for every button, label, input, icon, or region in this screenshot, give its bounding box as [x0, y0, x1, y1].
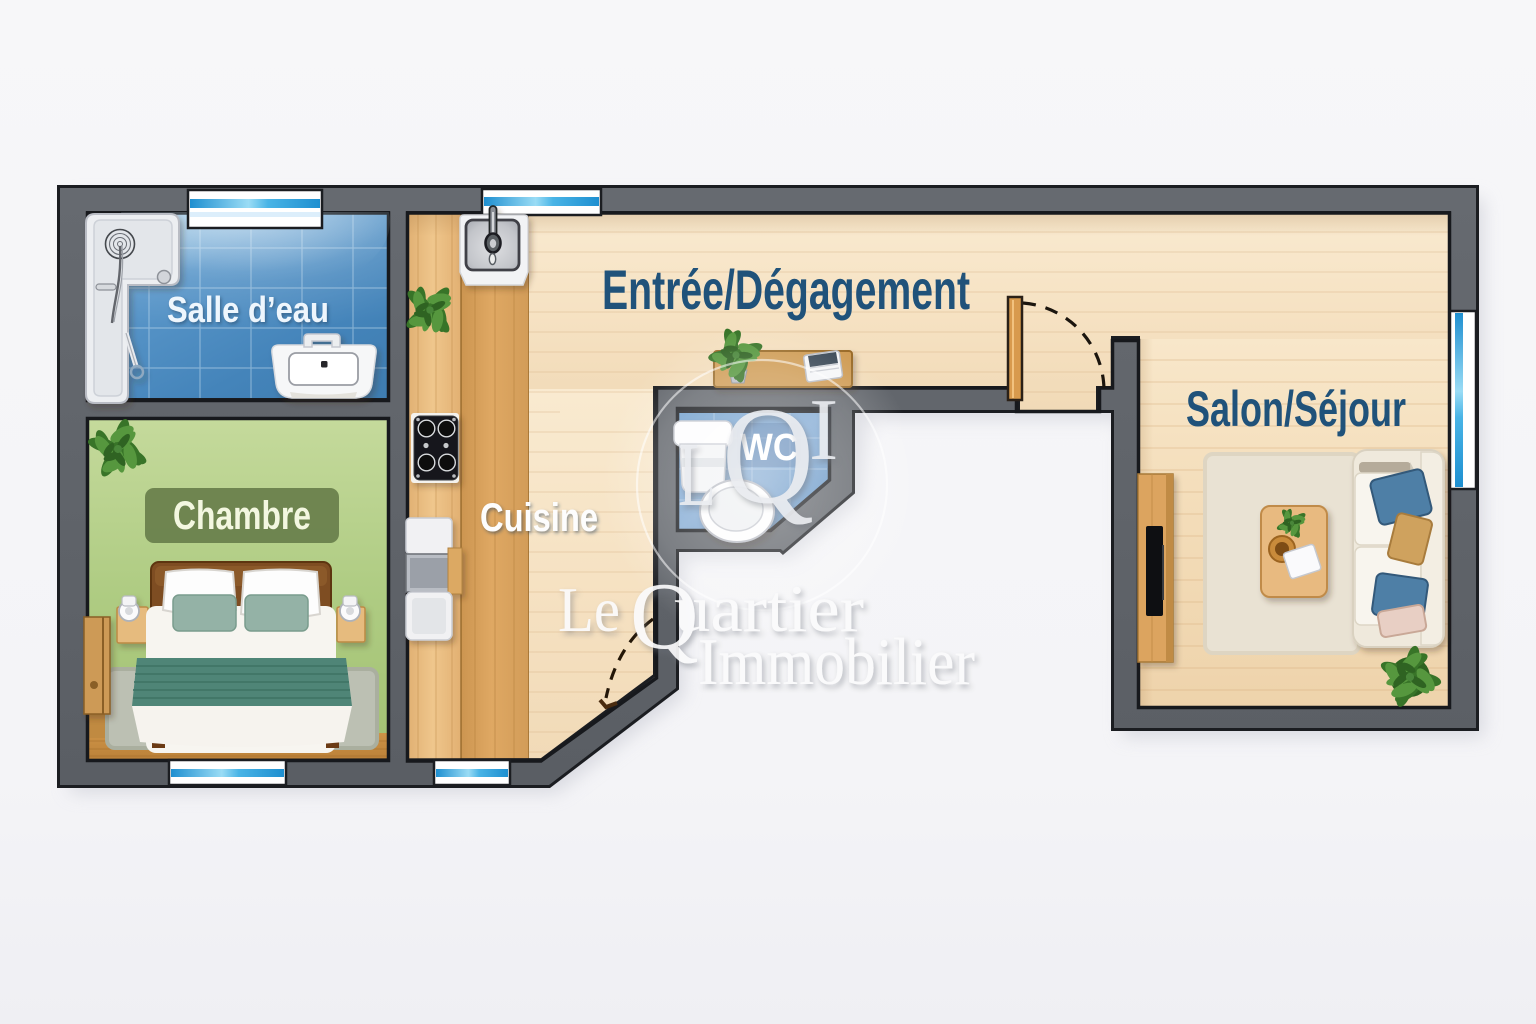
- svg-text:Immobilier: Immobilier: [698, 625, 975, 699]
- svg-text:Salon/Séjour: Salon/Séjour: [1186, 381, 1406, 437]
- svg-text:Le: Le: [558, 574, 620, 645]
- svg-text:Q: Q: [722, 379, 814, 533]
- svg-text:I: I: [809, 382, 838, 479]
- svg-text:L: L: [678, 424, 716, 525]
- svg-text:Cuisine: Cuisine: [480, 496, 598, 540]
- svg-text:Chambre: Chambre: [173, 494, 311, 538]
- svg-text:Salle d’eau: Salle d’eau: [167, 289, 329, 330]
- svg-text:Entrée/Dégagement: Entrée/Dégagement: [602, 258, 970, 321]
